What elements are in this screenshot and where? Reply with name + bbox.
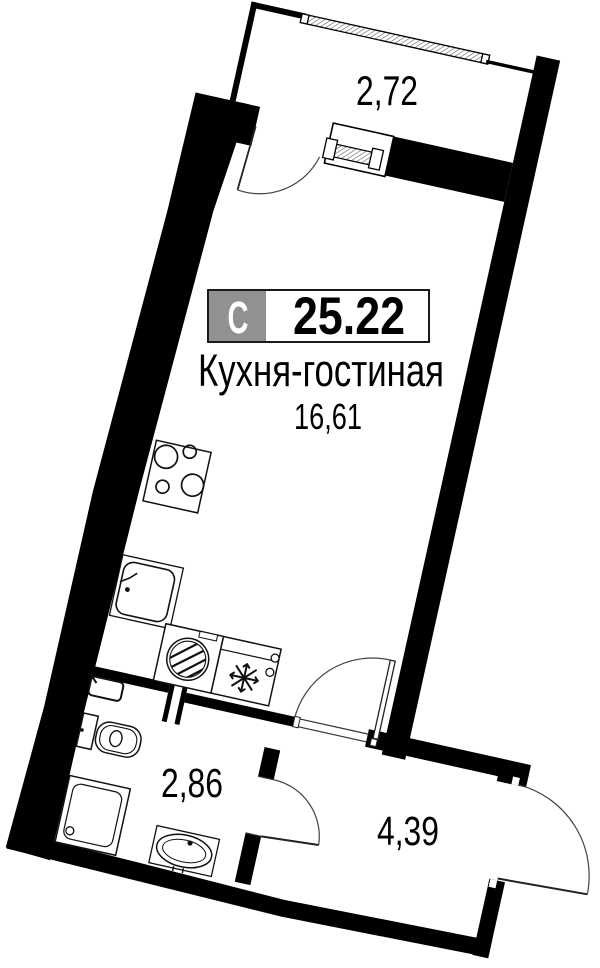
svg-text:4,39: 4,39 bbox=[377, 808, 439, 854]
svg-text:C: C bbox=[228, 292, 249, 343]
svg-text:25.22: 25.22 bbox=[293, 287, 405, 346]
svg-text:2,72: 2,72 bbox=[356, 67, 418, 114]
svg-text:Кухня-гостиная: Кухня-гостиная bbox=[198, 345, 444, 396]
svg-text:2,86: 2,86 bbox=[161, 760, 223, 806]
svg-text:16,61: 16,61 bbox=[294, 396, 362, 437]
